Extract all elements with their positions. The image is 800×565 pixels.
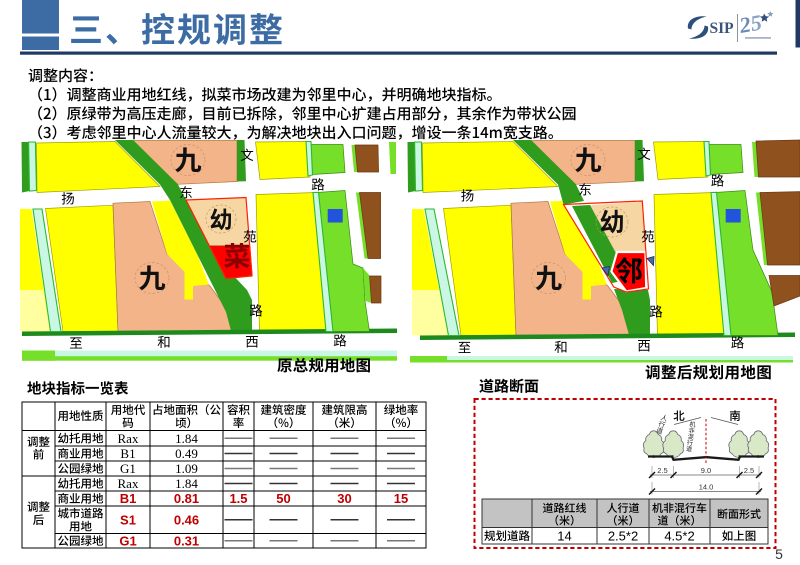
svg-text:1.5: 1.5 <box>229 491 247 506</box>
svg-text:2.5: 2.5 <box>744 466 754 475</box>
svg-text:S1: S1 <box>120 512 136 527</box>
svg-text:1.84: 1.84 <box>175 476 198 491</box>
svg-text:30: 30 <box>337 491 351 506</box>
svg-text:0.49: 0.49 <box>175 446 198 461</box>
svg-text:0.46: 0.46 <box>174 512 199 527</box>
svg-text:Rax: Rax <box>118 476 139 491</box>
svg-text:50: 50 <box>276 491 290 506</box>
svg-text:15: 15 <box>394 491 408 506</box>
svg-text:1.84: 1.84 <box>175 431 198 446</box>
svg-text:9.0: 9.0 <box>701 466 711 475</box>
svg-text:5: 5 <box>775 546 783 562</box>
svg-text:2.5: 2.5 <box>657 466 667 475</box>
svg-text:0.31: 0.31 <box>174 533 199 548</box>
svg-text:SIP: SIP <box>710 20 735 37</box>
svg-text:14.0: 14.0 <box>699 483 714 492</box>
svg-text:14: 14 <box>557 529 571 544</box>
svg-text:Rax: Rax <box>118 431 139 446</box>
svg-text:B1: B1 <box>120 491 137 506</box>
svg-text:0.81: 0.81 <box>174 491 199 506</box>
svg-text:2.5*2: 2.5*2 <box>608 529 638 544</box>
svg-text:G1: G1 <box>119 533 136 548</box>
svg-text:B1: B1 <box>120 446 135 461</box>
svg-text:25: 25 <box>737 9 764 38</box>
svg-text:1.09: 1.09 <box>175 461 198 476</box>
svg-text:G1: G1 <box>120 461 136 476</box>
svg-text:4.5*2: 4.5*2 <box>664 529 694 544</box>
